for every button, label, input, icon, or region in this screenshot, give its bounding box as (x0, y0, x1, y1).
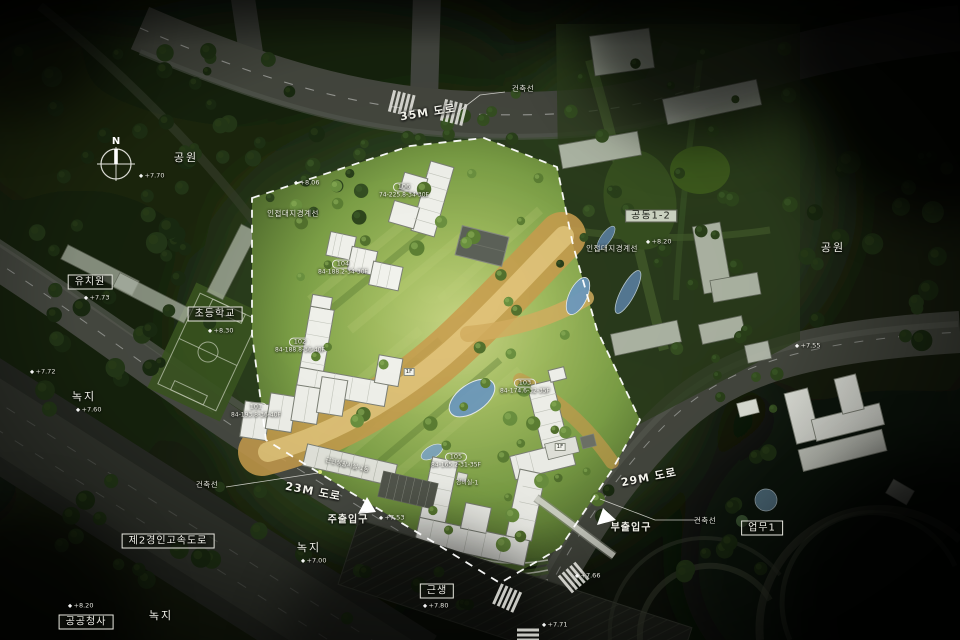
vignette-overlay (0, 0, 960, 640)
site-plan-canvas: N 공원+7.7035M 도로건축선공동1-2+8.20인접대지경계선공원+7.… (0, 0, 960, 640)
scene-svg: N (0, 0, 960, 640)
top-edge-shadow (0, 0, 960, 46)
building-line-marker-dot (318, 470, 322, 474)
compass-n-label: N (112, 136, 120, 147)
